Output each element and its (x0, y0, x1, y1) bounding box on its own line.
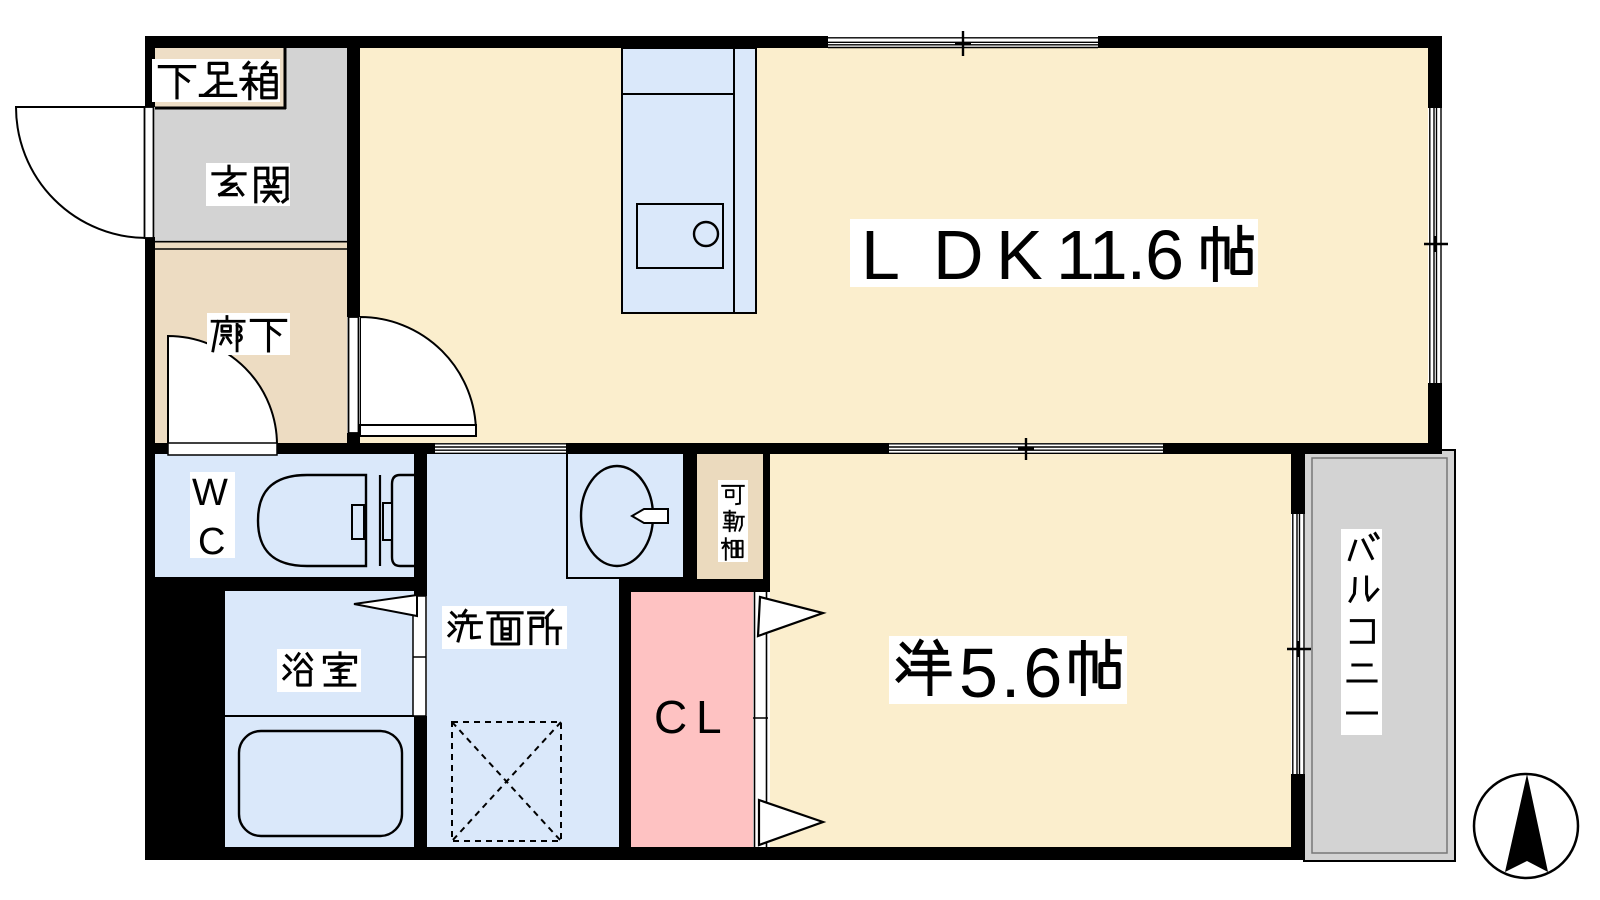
svg-text:L: L (696, 691, 722, 743)
svg-text:W: W (192, 472, 228, 514)
svg-text:L: L (861, 216, 900, 294)
svg-text:D: D (933, 216, 984, 294)
svg-text:11.6: 11.6 (1056, 216, 1183, 294)
svg-text:C: C (198, 521, 225, 563)
svg-text:K: K (996, 216, 1043, 294)
svg-text:5.6: 5.6 (959, 634, 1065, 712)
svg-text:C: C (654, 691, 687, 743)
